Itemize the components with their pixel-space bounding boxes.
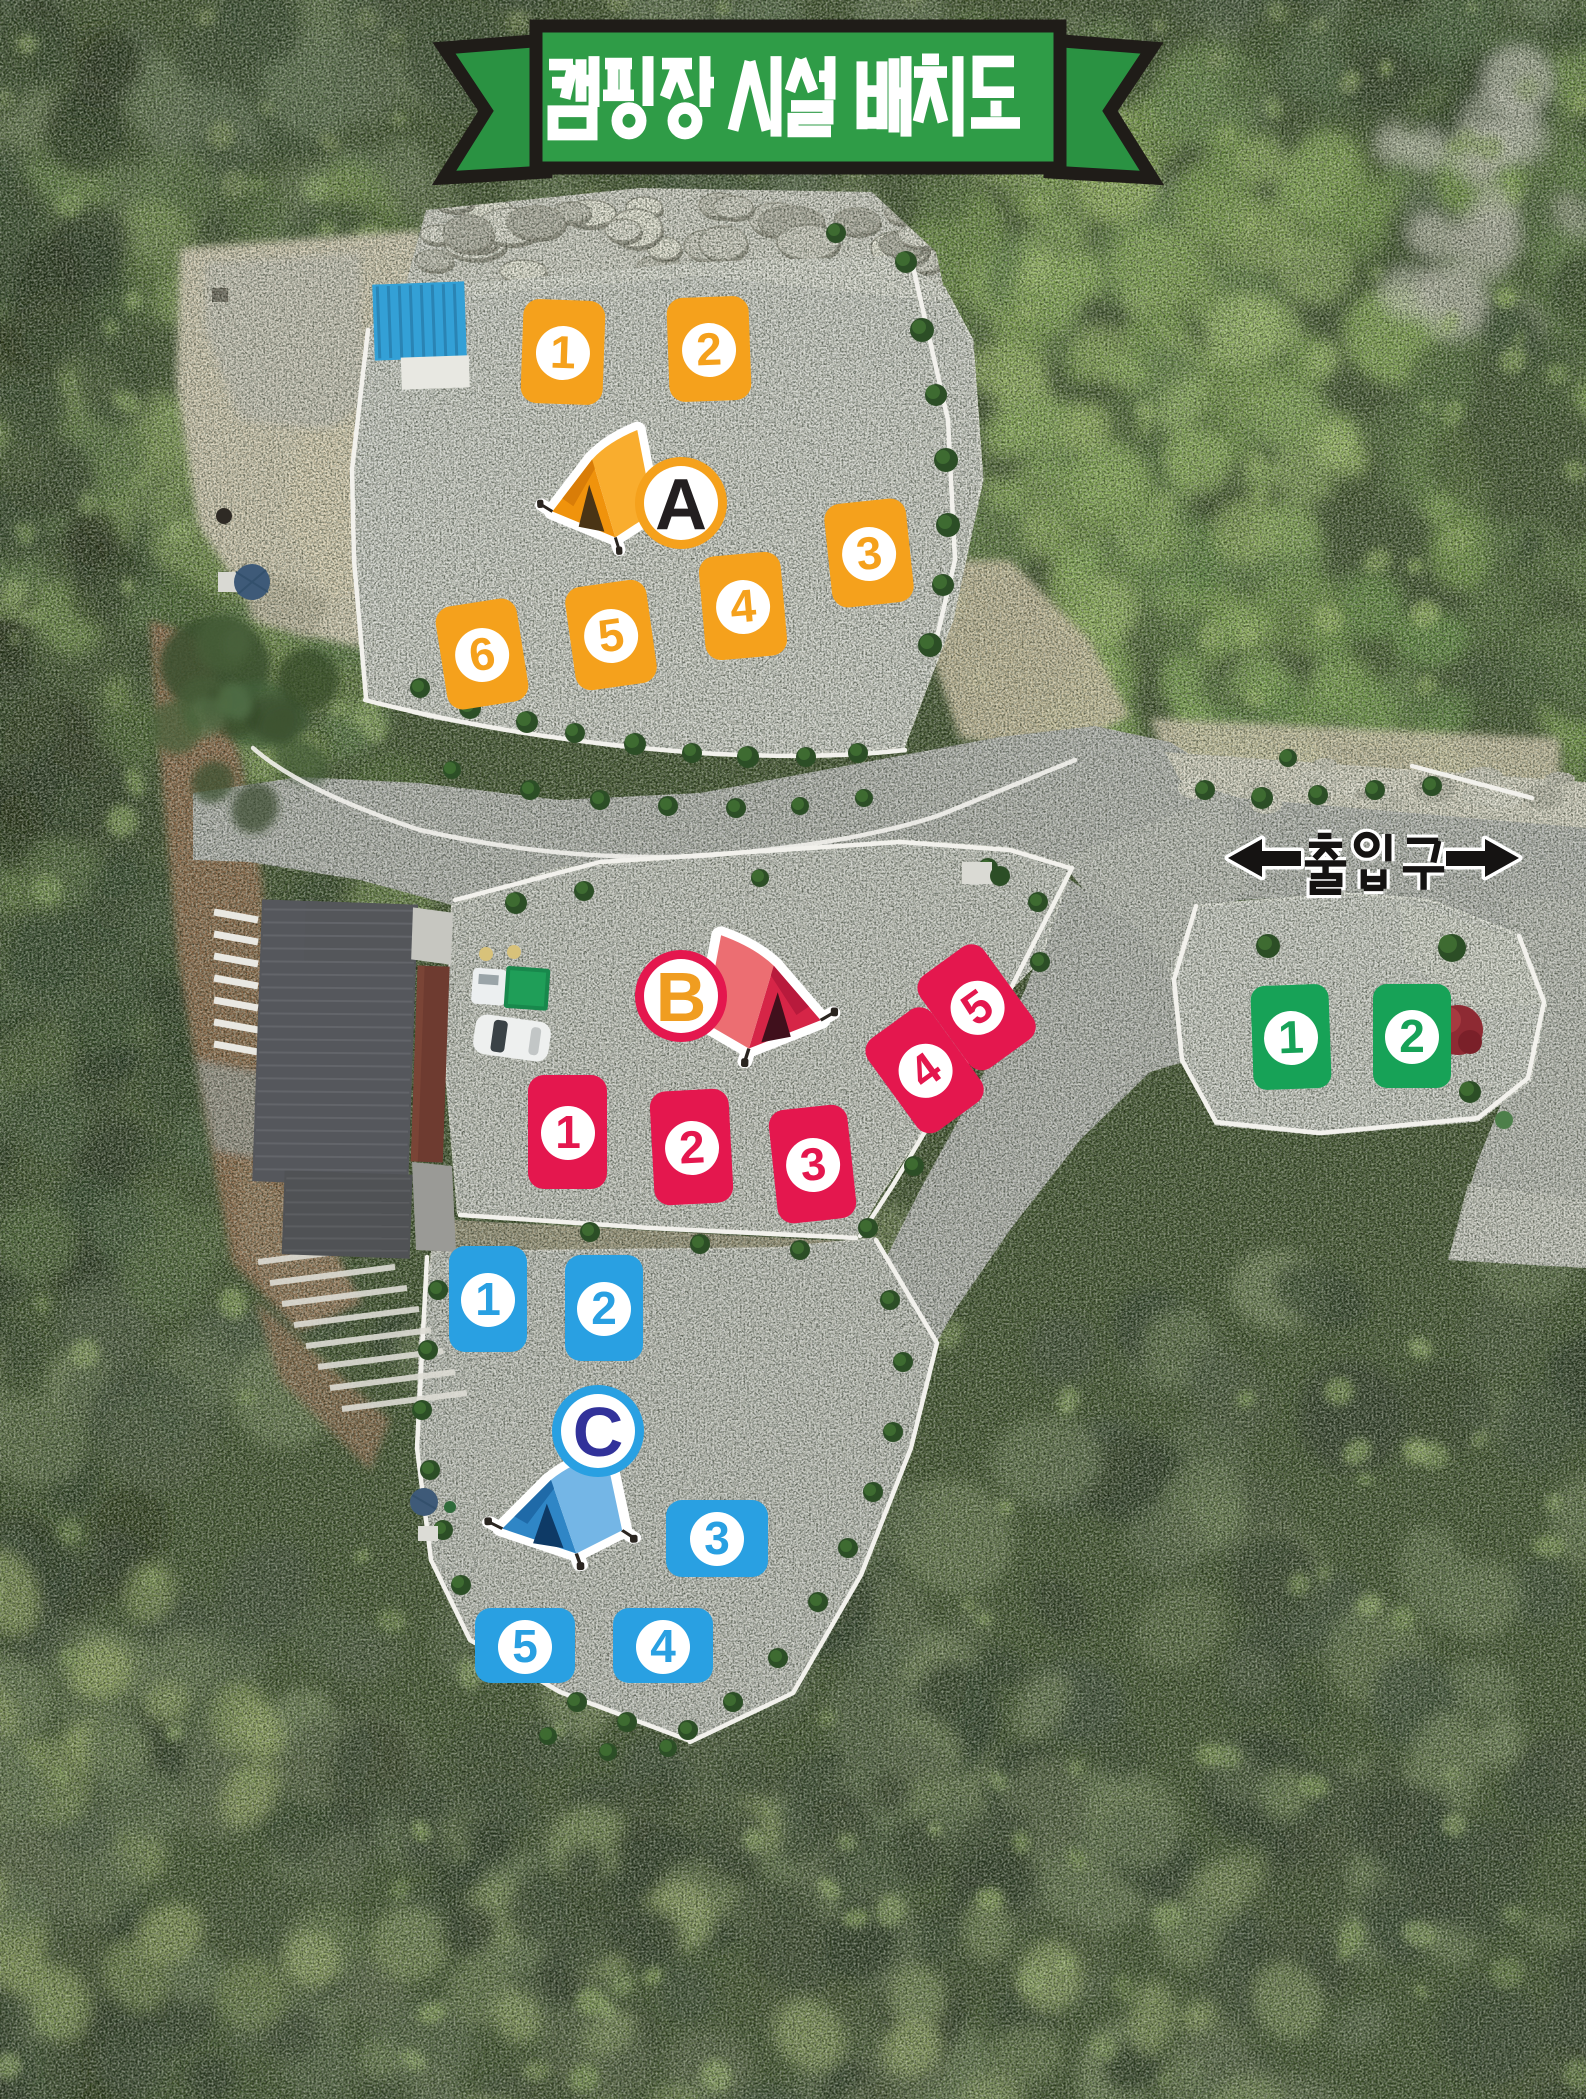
svg-text:3: 3 bbox=[854, 526, 885, 580]
svg-text:A: A bbox=[655, 465, 707, 545]
svg-text:4: 4 bbox=[728, 579, 758, 633]
svg-text:B: B bbox=[656, 958, 707, 1036]
svg-text:2: 2 bbox=[678, 1120, 706, 1173]
svg-text:C: C bbox=[573, 1393, 624, 1471]
svg-text:1: 1 bbox=[555, 1106, 581, 1158]
svg-text:2: 2 bbox=[695, 323, 722, 376]
svg-text:3: 3 bbox=[704, 1512, 730, 1564]
svg-text:2: 2 bbox=[591, 1282, 617, 1334]
svg-text:1: 1 bbox=[549, 326, 576, 379]
svg-text:3: 3 bbox=[798, 1137, 829, 1191]
svg-text:1: 1 bbox=[475, 1273, 501, 1325]
svg-text:2: 2 bbox=[1399, 1010, 1425, 1062]
svg-text:1: 1 bbox=[1277, 1011, 1304, 1064]
svg-text:5: 5 bbox=[512, 1620, 538, 1672]
svg-text:4: 4 bbox=[650, 1620, 676, 1672]
